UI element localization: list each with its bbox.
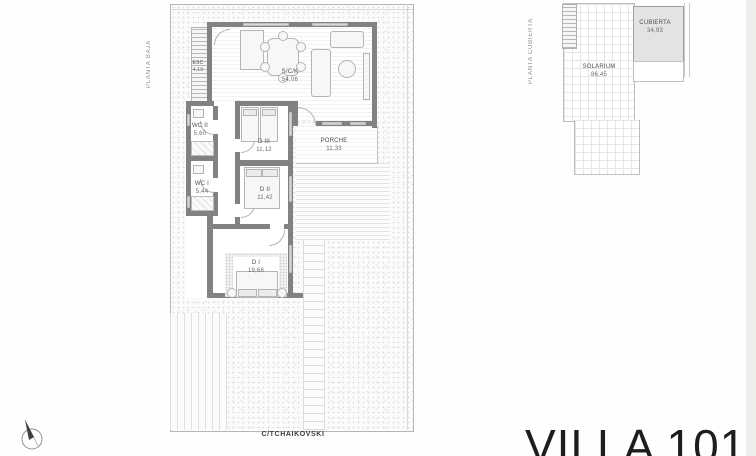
stairs-roof [562,4,577,49]
wall-segment [284,224,293,229]
wall-segment [213,106,218,120]
planting-strip [170,313,227,430]
floor-label-planta-cubierta: PLANTA CUBIERTA [528,24,534,84]
room-label-porche: PORCHE11,33 [312,138,356,154]
solarium-area-lower [574,120,640,175]
window-segment [289,245,292,273]
nightstand [277,288,287,298]
wall-segment [372,22,377,128]
north-arrow-icon [16,416,48,452]
roof-edge-line [684,3,685,77]
room-label-d2: D II11,42 [243,187,287,203]
shower [191,196,214,211]
window-segment [322,122,342,125]
window-segment [243,23,289,26]
shower [191,141,214,156]
pillow [258,289,277,297]
floor-plan-sheet: ESC4,19 S/C/K54,06 WC II5,60 WC I5,44 D … [0,0,756,456]
plan-title: VILLA 101 [525,419,746,456]
pillow [243,109,257,116]
pillow [246,169,262,177]
chair [260,42,270,52]
room-label-cubierta: CUBIERTA34,93 [631,20,679,36]
room-label-d3: D III11,12 [242,139,286,155]
sofa [330,31,364,48]
pillow [262,109,276,116]
window-segment [289,176,292,202]
wall-segment [235,160,293,166]
street-label: C/TCHAIKOVSKI [238,431,348,438]
wall-segment [213,224,270,229]
wall-segment [235,101,240,139]
chaise-sofa [311,49,331,97]
room-label-sck: S/C/K54,06 [268,69,312,85]
plot-inner-line-right [407,4,408,430]
garden-walkway [303,240,325,430]
coffee-table [338,60,356,78]
pillow [262,169,278,177]
chair [278,31,288,41]
room-label-wc2: WC II5,60 [180,123,220,139]
wall-segment [240,101,296,106]
terrace-paving [296,163,390,240]
window-segment [350,122,366,125]
room-label-esc: ESC4,19 [188,60,208,73]
roof-edge-line [689,3,690,77]
nightstand [227,288,237,298]
washbasin [193,165,204,174]
window-segment [289,112,292,136]
chair [296,42,306,52]
room-label-d1: D I19,68 [234,260,278,276]
window-segment [187,196,190,208]
tv-bench [363,53,370,100]
pillow [238,289,257,297]
washbasin [193,109,204,118]
cubierta-open-area [633,61,684,82]
plot-inner-line-top [170,9,413,10]
floor-label-planta-baja: PLANTA BAJA [146,28,152,88]
room-label-wc1: WC I5,44 [182,181,222,197]
wall-segment [186,156,216,161]
window-segment [312,23,348,26]
wall-segment [207,22,377,27]
sheet-edge-strip [746,0,756,456]
room-label-solarium: SOLARIUM86,45 [575,64,623,80]
